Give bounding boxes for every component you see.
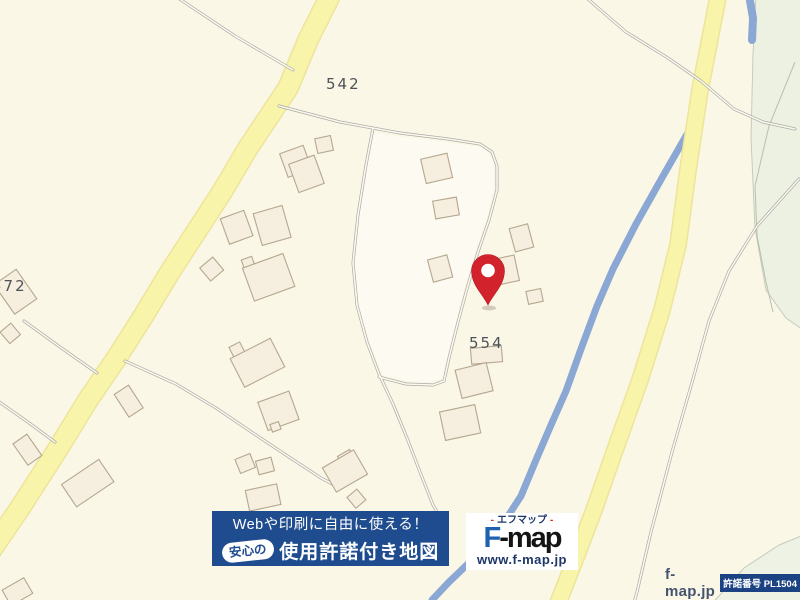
parcel-label-542: 542 bbox=[326, 75, 361, 93]
promo-banner: Webや印刷に自由に使える！ 安心の 使用許諾付き地図 bbox=[212, 511, 449, 566]
parcel-label-554: 554 bbox=[469, 334, 504, 352]
fmap-url: www.f-map.jp bbox=[466, 553, 578, 566]
wordmark-f: F bbox=[483, 522, 499, 554]
map-graphics bbox=[0, 0, 800, 600]
map-canvas[interactable]: 542 554 572 Webや印刷に自由に使える！ 安心の 使用許諾付き地図 … bbox=[0, 0, 800, 600]
promo-banner-line2: 安心の 使用許諾付き地図 bbox=[222, 537, 440, 564]
fmap-logo: -エフマップ- F-map www.f-map.jp bbox=[466, 513, 578, 570]
forest-area bbox=[710, 0, 800, 600]
attribution-site: f-map.jp bbox=[665, 566, 716, 600]
parcel-label-572: 572 bbox=[0, 277, 27, 295]
promo-banner-line1: Webや印刷に自由に使える！ bbox=[233, 513, 429, 534]
license-number-badge: 許諾番号 PL1504 bbox=[720, 574, 800, 592]
licensed-map-text: 使用許諾付き地図 bbox=[279, 537, 439, 564]
fmap-wordmark: F-map bbox=[466, 526, 578, 551]
wordmark-map: -map bbox=[499, 522, 560, 554]
location-pin-icon[interactable] bbox=[472, 255, 505, 311]
attribution: f-map.jp 許諾番号 PL1504 ©GeoTechnologies, I… bbox=[665, 566, 800, 600]
anshin-badge: 安心の bbox=[221, 538, 274, 563]
